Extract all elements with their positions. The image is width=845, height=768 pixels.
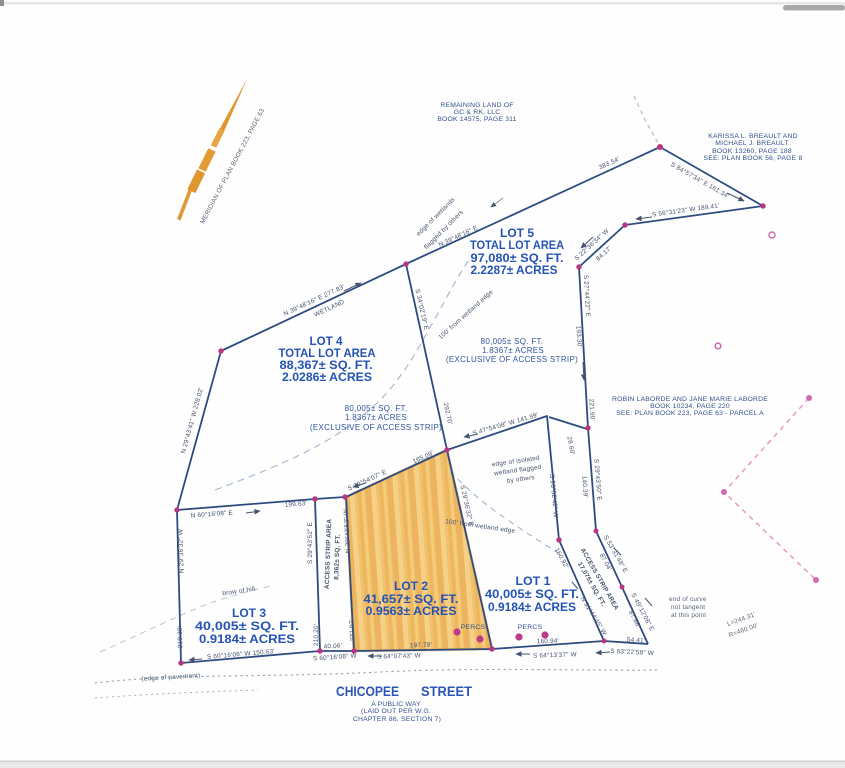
svg-text:S 27°44'22" E: S 27°44'22" E bbox=[582, 275, 592, 317]
svg-text:28.60': 28.60' bbox=[565, 436, 575, 455]
svg-text:100' from wetland edge: 100' from wetland edge bbox=[437, 288, 494, 341]
svg-text:193.30': 193.30' bbox=[574, 326, 582, 349]
svg-text:not tangent: not tangent bbox=[671, 604, 705, 611]
svg-text:SEE: PLAN BOOK 223, PAGE 63 -: SEE: PLAN BOOK 223, PAGE 63 - PARCEL A bbox=[616, 410, 764, 417]
svg-text:54.41': 54.41' bbox=[627, 637, 646, 645]
svg-text:S 64°07'43" W: S 64°07'43" W bbox=[377, 651, 422, 661]
svg-text:GC & RK, LLC: GC & RK, LLC bbox=[454, 109, 501, 116]
svg-text:S 63°22'58" W: S 63°22'58" W bbox=[610, 647, 655, 657]
svg-text:N 29°36'32" W: N 29°36'32" W bbox=[176, 528, 185, 573]
svg-text:197.78': 197.78' bbox=[410, 642, 432, 650]
svg-text:40,005± SQ. FT.: 40,005± SQ. FT. bbox=[485, 587, 579, 601]
svg-text:(EXCLUSIVE OF ACCESS STRIP): (EXCLUSIVE OF ACCESS STRIP) bbox=[310, 423, 442, 432]
svg-text:by others: by others bbox=[506, 474, 535, 485]
svg-text:ROBIN LABORDE AND JANE MARIE L: ROBIN LABORDE AND JANE MARIE LABORDE bbox=[612, 396, 768, 403]
svg-text:S 84°57'34" E 161.34': S 84°57'34" E 161.34' bbox=[669, 160, 730, 200]
svg-text:160.94': 160.94' bbox=[537, 638, 559, 646]
svg-text:BOOK 10234, PAGE 220: BOOK 10234, PAGE 220 bbox=[650, 403, 730, 410]
svg-text:S 60°16'08" W 150.63': S 60°16'08" W 150.63' bbox=[207, 647, 275, 661]
svg-text:1.8367± ACRES: 1.8367± ACRES bbox=[482, 346, 544, 355]
svg-text:210.20': 210.20' bbox=[313, 624, 320, 646]
svg-text:CHICOPEE: CHICOPEE bbox=[336, 684, 399, 699]
svg-text:BOOK 13260, PAGE 188: BOOK 13260, PAGE 188 bbox=[712, 148, 792, 155]
svg-text:MERIDIAN OF PLAN BOOK 223, PAG: MERIDIAN OF PLAN BOOK 223, PAGE 63 bbox=[199, 107, 266, 225]
svg-text:40,005± SQ. FT.: 40,005± SQ. FT. bbox=[195, 619, 299, 633]
svg-text:199.63': 199.63' bbox=[285, 500, 308, 509]
svg-text:(edge of pavement): (edge of pavement) bbox=[141, 672, 200, 683]
svg-text:40.06': 40.06' bbox=[324, 643, 343, 651]
svg-text:80,005± SQ. FT.: 80,005± SQ. FT. bbox=[345, 404, 408, 413]
svg-text:N 60°16'08" E: N 60°16'08" E bbox=[190, 508, 233, 519]
svg-text:383.54': 383.54' bbox=[598, 156, 621, 172]
svg-text:S 29°43'52" E: S 29°43'52" E bbox=[306, 522, 314, 564]
svg-text:0.9184± ACRES: 0.9184± ACRES bbox=[488, 600, 576, 614]
svg-text:SEE: PLAN BOOK 56, PAGE 8: SEE: PLAN BOOK 56, PAGE 8 bbox=[704, 155, 803, 162]
svg-text:210.30': 210.30' bbox=[177, 626, 185, 648]
svg-text:84.17': 84.17' bbox=[595, 245, 613, 263]
svg-text:A PUBLIC WAY: A PUBLIC WAY bbox=[371, 701, 421, 708]
svg-text:PERCS: PERCS bbox=[461, 624, 486, 631]
svg-text:brow of hill: brow of hill bbox=[222, 586, 256, 598]
svg-text:(EXCLUSIVE OF ACCESS STRIP): (EXCLUSIVE OF ACCESS STRIP) bbox=[446, 355, 578, 364]
svg-text:0.9184± ACRES: 0.9184± ACRES bbox=[199, 632, 295, 646]
svg-text:S 26°52'42" W: S 26°52'42" W bbox=[548, 474, 560, 519]
svg-text:2.2287± ACRES: 2.2287± ACRES bbox=[471, 263, 558, 277]
svg-text:0.9563± ACRES: 0.9563± ACRES bbox=[366, 604, 457, 618]
svg-text:MICHAEL J. BREAULT: MICHAEL J. BREAULT bbox=[715, 140, 788, 147]
svg-text:140.39': 140.39' bbox=[580, 476, 589, 499]
svg-text:2.0286± ACRES: 2.0286± ACRES bbox=[282, 370, 372, 384]
svg-text:CHAPTER 86, SECTION 7): CHAPTER 86, SECTION 7) bbox=[353, 716, 441, 723]
svg-text:end of curve: end of curve bbox=[669, 596, 707, 603]
svg-text:BOOK 14575, PAGE 311: BOOK 14575, PAGE 311 bbox=[437, 116, 516, 123]
svg-text:80,005± SQ. FT.: 80,005± SQ. FT. bbox=[481, 337, 544, 346]
svg-text:S 47°54'08" W 141.99': S 47°54'08" W 141.99' bbox=[472, 411, 540, 437]
svg-text:ACCESS STRIP AREA: ACCESS STRIP AREA bbox=[324, 519, 333, 590]
svg-text:237.97': 237.97' bbox=[348, 619, 356, 642]
svg-text:STREET: STREET bbox=[421, 684, 473, 699]
svg-text:8,362± SQ. FT.: 8,362± SQ. FT. bbox=[333, 534, 342, 580]
svg-text:292.70': 292.70' bbox=[442, 402, 454, 425]
svg-text:LOT 3: LOT 3 bbox=[232, 606, 266, 620]
svg-text:TOTAL LOT AREA: TOTAL LOT AREA bbox=[470, 238, 564, 252]
svg-text:PERCS: PERCS bbox=[518, 624, 543, 631]
svg-text:S 64°13'37" W: S 64°13'37" W bbox=[533, 650, 578, 660]
svg-text:REMAINING LAND OF: REMAINING LAND OF bbox=[440, 102, 513, 109]
svg-text:KARISSA L. BREAULT AND: KARISSA L. BREAULT AND bbox=[708, 133, 798, 140]
svg-text:(LAID OUT PER W.G.: (LAID OUT PER W.G. bbox=[361, 708, 431, 715]
svg-text:at this point: at this point bbox=[671, 612, 706, 619]
svg-text:edge of wetlands: edge of wetlands bbox=[415, 196, 456, 237]
svg-text:LOT 2: LOT 2 bbox=[394, 579, 428, 593]
svg-text:221.90': 221.90' bbox=[587, 399, 595, 422]
svg-text:LOT 1: LOT 1 bbox=[516, 574, 551, 588]
svg-text:1.8367± ACRES: 1.8367± ACRES bbox=[345, 413, 407, 422]
